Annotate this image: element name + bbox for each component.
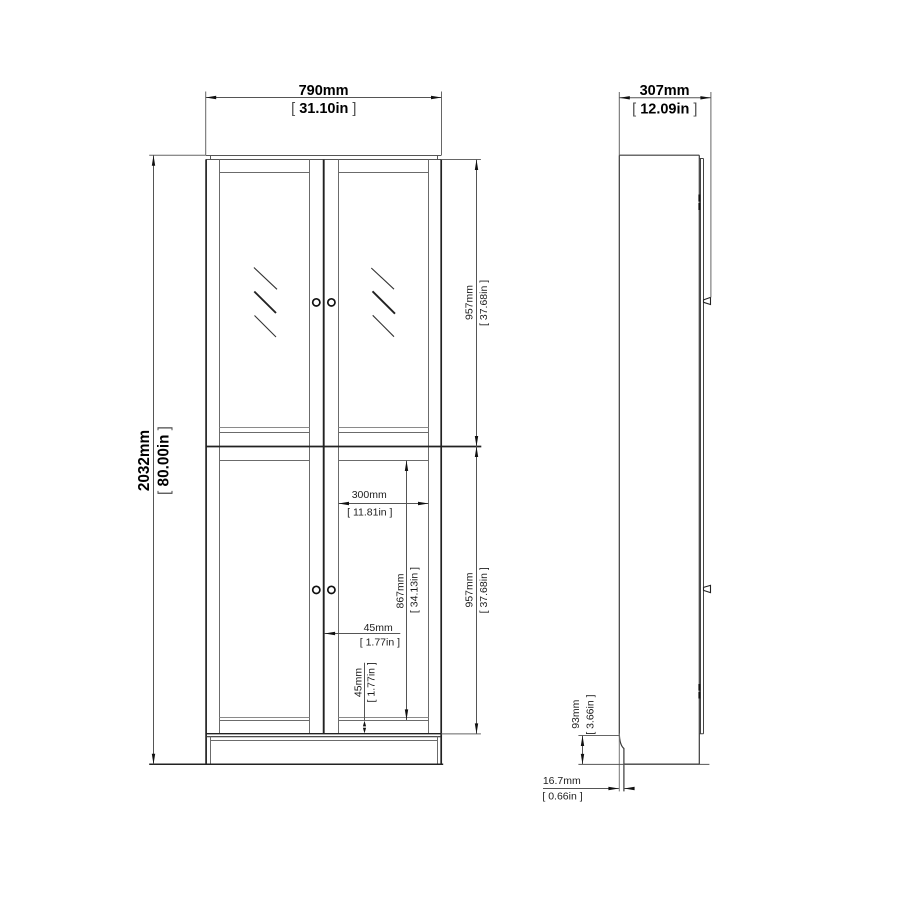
svg-text:[ 37.68in ]: [ 37.68in ]	[478, 280, 490, 326]
svg-text:[ 11.81in ]: [ 11.81in ]	[347, 507, 392, 519]
svg-text:[ 1.77in ]: [ 1.77in ]	[366, 662, 378, 702]
svg-text:867mm: 867mm	[395, 573, 407, 608]
svg-text:[ 3.66in ]: [ 3.66in ]	[584, 694, 596, 734]
svg-text:[ 1.77in ]: [ 1.77in ]	[360, 636, 400, 648]
svg-text:[ 80.00in ]: [ 80.00in ]	[156, 426, 173, 495]
svg-text:2032mm: 2032mm	[136, 430, 153, 491]
svg-text:[ 0.66in ]: [ 0.66in ]	[542, 790, 582, 802]
svg-text:[ 31.10in ]: [ 31.10in ]	[291, 101, 356, 117]
svg-text:790mm: 790mm	[299, 83, 349, 99]
svg-text:93mm: 93mm	[570, 699, 582, 728]
svg-text:957mm: 957mm	[464, 285, 476, 320]
svg-text:[ 37.68in ]: [ 37.68in ]	[478, 567, 490, 613]
svg-text:957mm: 957mm	[464, 572, 476, 607]
svg-text:307mm: 307mm	[640, 83, 690, 99]
svg-text:45mm: 45mm	[353, 668, 365, 697]
svg-text:[ 34.13in ]: [ 34.13in ]	[408, 567, 420, 613]
svg-text:[ 12.09in ]: [ 12.09in ]	[632, 101, 697, 117]
svg-text:16.7mm: 16.7mm	[543, 775, 581, 787]
svg-text:300mm: 300mm	[352, 489, 387, 501]
svg-text:45mm: 45mm	[364, 622, 393, 634]
